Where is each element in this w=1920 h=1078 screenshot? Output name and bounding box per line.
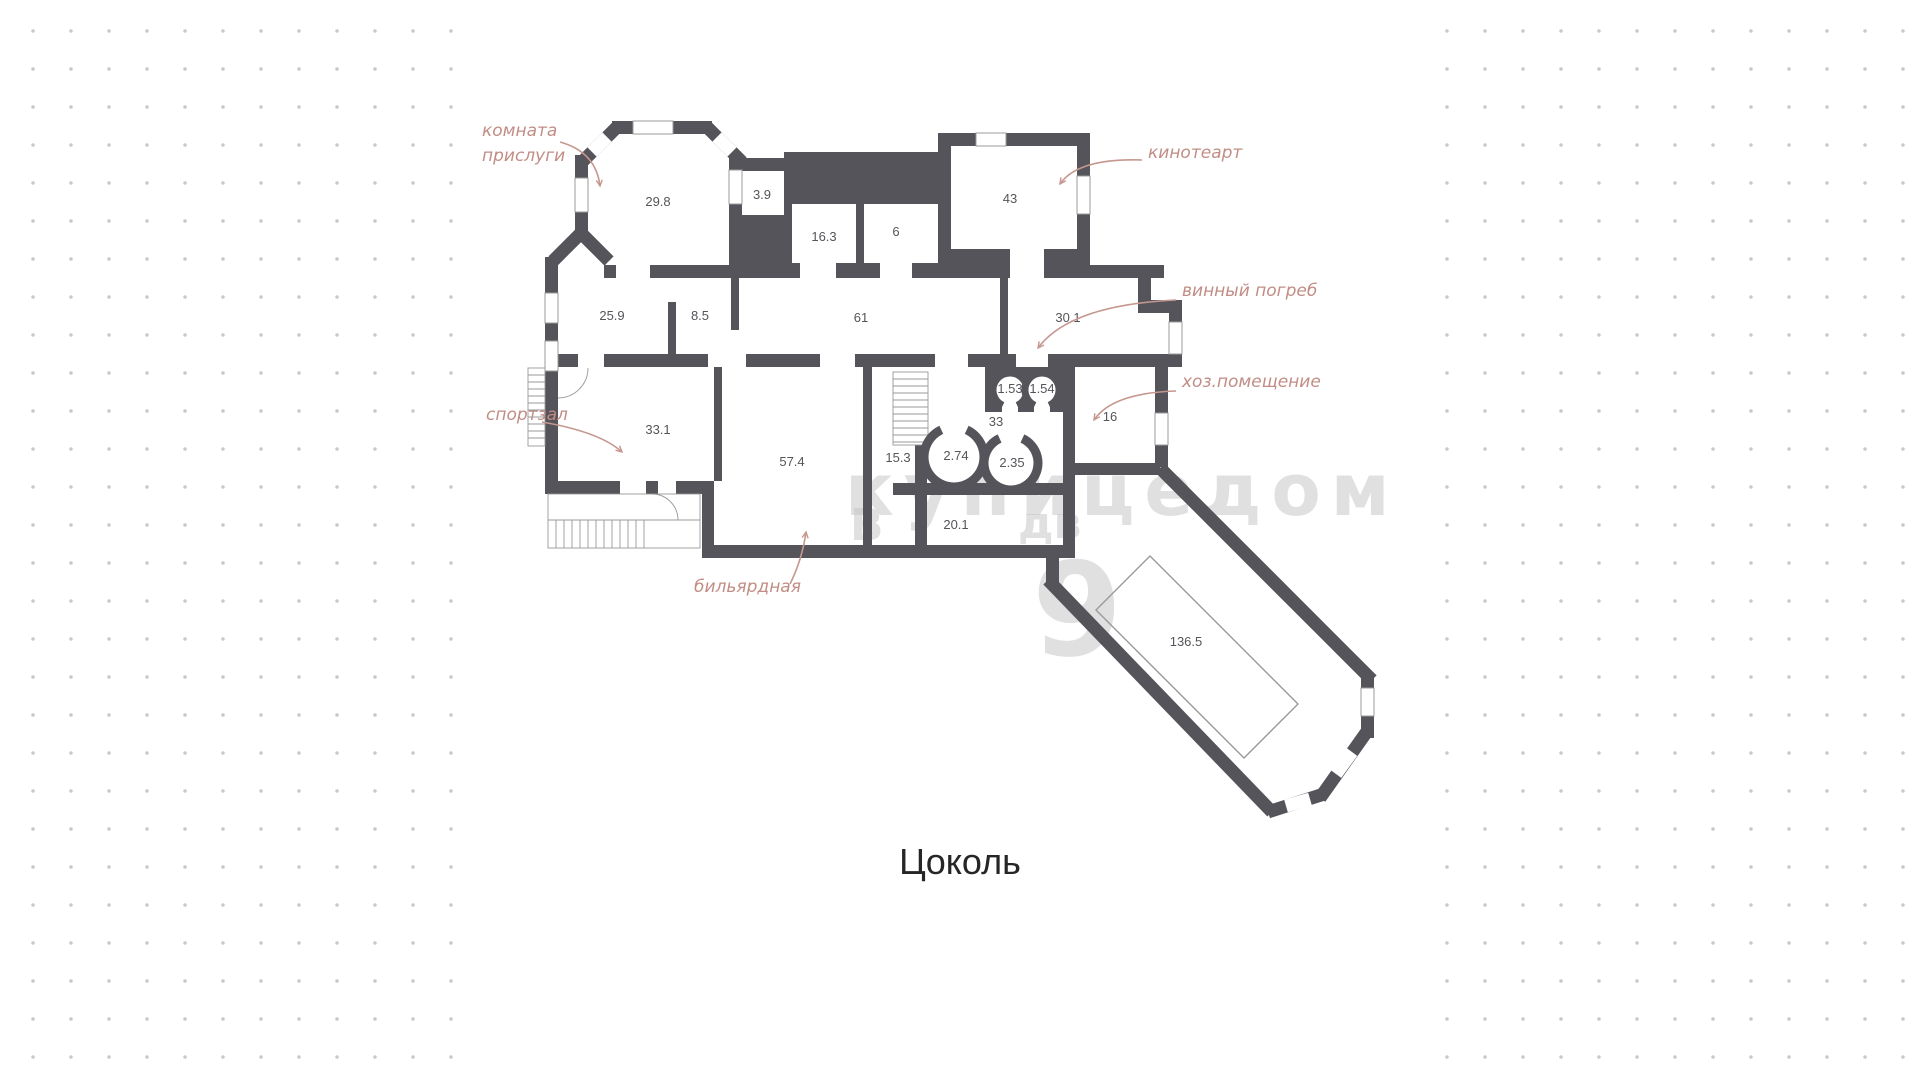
room-area-label: 61 [854, 310, 868, 325]
room-area-label: 136.5 [1170, 634, 1203, 649]
annotation-label-kinoteart: кинотеарт [1148, 143, 1243, 163]
room-area-label: 2.74 [943, 448, 968, 463]
floor-title: Цоколь [899, 841, 1021, 882]
room-area-label: 25.9 [599, 308, 624, 323]
room-area-label: 16 [1103, 409, 1117, 424]
room-area-label: 6 [892, 224, 899, 239]
room-area-label: 2.35 [999, 455, 1024, 470]
floor-plan: купицедом Вдв9 [0, 0, 1920, 1078]
room-area-label: 1.54 [1029, 381, 1054, 396]
room-area-label: 33.1 [645, 422, 670, 437]
annotation-label-vinny-pogreb: винный погреб [1182, 281, 1317, 301]
room-area-label: 29.8 [645, 194, 670, 209]
room-area-label: 33 [989, 414, 1003, 429]
annotation-label-komnata-prislugi: комнатаприслуги [482, 121, 565, 166]
room-area-label: 43 [1003, 191, 1017, 206]
room-area-label: 3.9 [753, 187, 771, 202]
annotation-label-sportzal: спортзал [486, 405, 568, 425]
annotation-label-hozpomeshchenie: хоз.помещение [1181, 372, 1321, 392]
door-arc [558, 368, 588, 398]
floor-plan-svg: купицедом Вдв9 [0, 0, 1920, 1078]
room-area-label: 16.3 [811, 229, 836, 244]
room-area-label: 1.53 [997, 381, 1022, 396]
annotation-label-bilyardnaya: бильярдная [694, 577, 801, 597]
annotation-arrow-kinoteart [1060, 160, 1142, 184]
room-area-label: 20.1 [943, 517, 968, 532]
room-area-label: 15.3 [885, 450, 910, 465]
room-area-label: 57.4 [779, 454, 804, 469]
room-area-label: 8.5 [691, 308, 709, 323]
